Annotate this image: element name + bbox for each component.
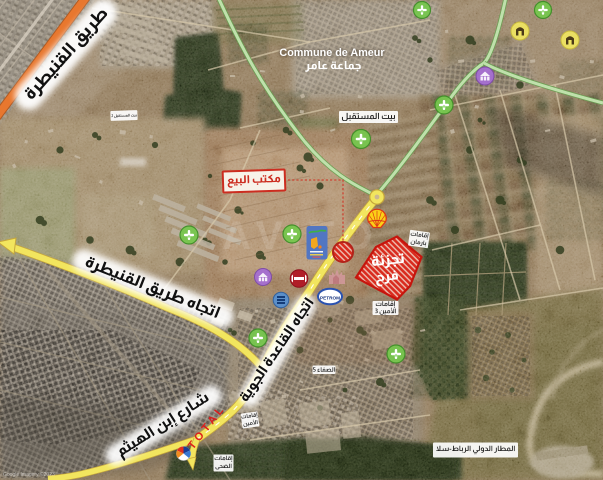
svg-text:Commune de Ameur: Commune de Ameur — [279, 47, 385, 59]
svg-text:PETROM: PETROM — [320, 296, 340, 301]
svg-text:Google Imagery ©2023: Google Imagery ©2023 — [3, 471, 55, 478]
